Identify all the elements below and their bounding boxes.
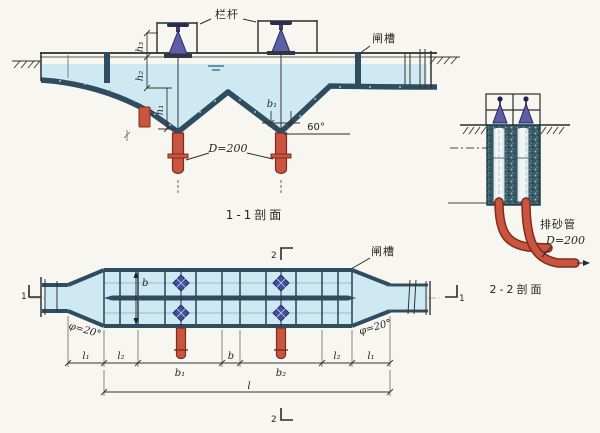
plan-pipe-stub-1 bbox=[174, 328, 188, 359]
dim-h1: h₁ bbox=[155, 105, 166, 115]
dim-h2: h₂ bbox=[135, 71, 146, 81]
section-2-caption: 2-2剖面 bbox=[490, 282, 545, 296]
plan-pipe-stub-2 bbox=[274, 328, 288, 359]
central-wall bbox=[104, 296, 356, 301]
engineering-drawing: 栏杆 bbox=[0, 0, 600, 433]
pipe-shaft-right bbox=[517, 128, 529, 202]
drawing-sheet: 栏杆 bbox=[0, 0, 600, 433]
dim-l2-left: l₂ bbox=[117, 351, 124, 362]
dim-h3: h₃ bbox=[135, 42, 146, 52]
dim-b-gap: b bbox=[228, 351, 234, 362]
svg-text:2: 2 bbox=[271, 251, 277, 261]
railing-label: 栏杆 bbox=[215, 7, 239, 21]
gate-slot-label-plan: 闸槽 bbox=[371, 245, 395, 258]
pipe-shaft-left bbox=[493, 128, 505, 202]
slope-angle-label: 60° bbox=[307, 122, 325, 133]
dim-b2-plan: b₂ bbox=[276, 368, 286, 379]
dim-l-total: l bbox=[247, 381, 250, 392]
dim-b1-plan: b₁ bbox=[175, 368, 185, 379]
svg-text:1: 1 bbox=[459, 294, 465, 304]
dim-l1-right: l₁ bbox=[367, 351, 374, 362]
sand-pipe-label: 排砂管 bbox=[540, 217, 576, 231]
gate-slot-label-section: 闸槽 bbox=[372, 32, 396, 45]
dim-l2-right: l₂ bbox=[333, 351, 340, 362]
dim-b1-section: b₁ bbox=[267, 99, 277, 110]
pipe-diameter-label: D=200 bbox=[207, 142, 247, 155]
dim-width-b: b bbox=[142, 278, 148, 289]
gate-slot-section bbox=[355, 52, 361, 88]
pipe-diameter-label-2: D=200 bbox=[545, 234, 585, 247]
dim-l1-left: l₁ bbox=[82, 351, 89, 362]
svg-text:2: 2 bbox=[271, 415, 277, 425]
svg-text:1: 1 bbox=[21, 292, 27, 302]
left-gate-pier bbox=[104, 53, 110, 83]
section-1-caption: 1-1剖面 bbox=[226, 208, 285, 222]
